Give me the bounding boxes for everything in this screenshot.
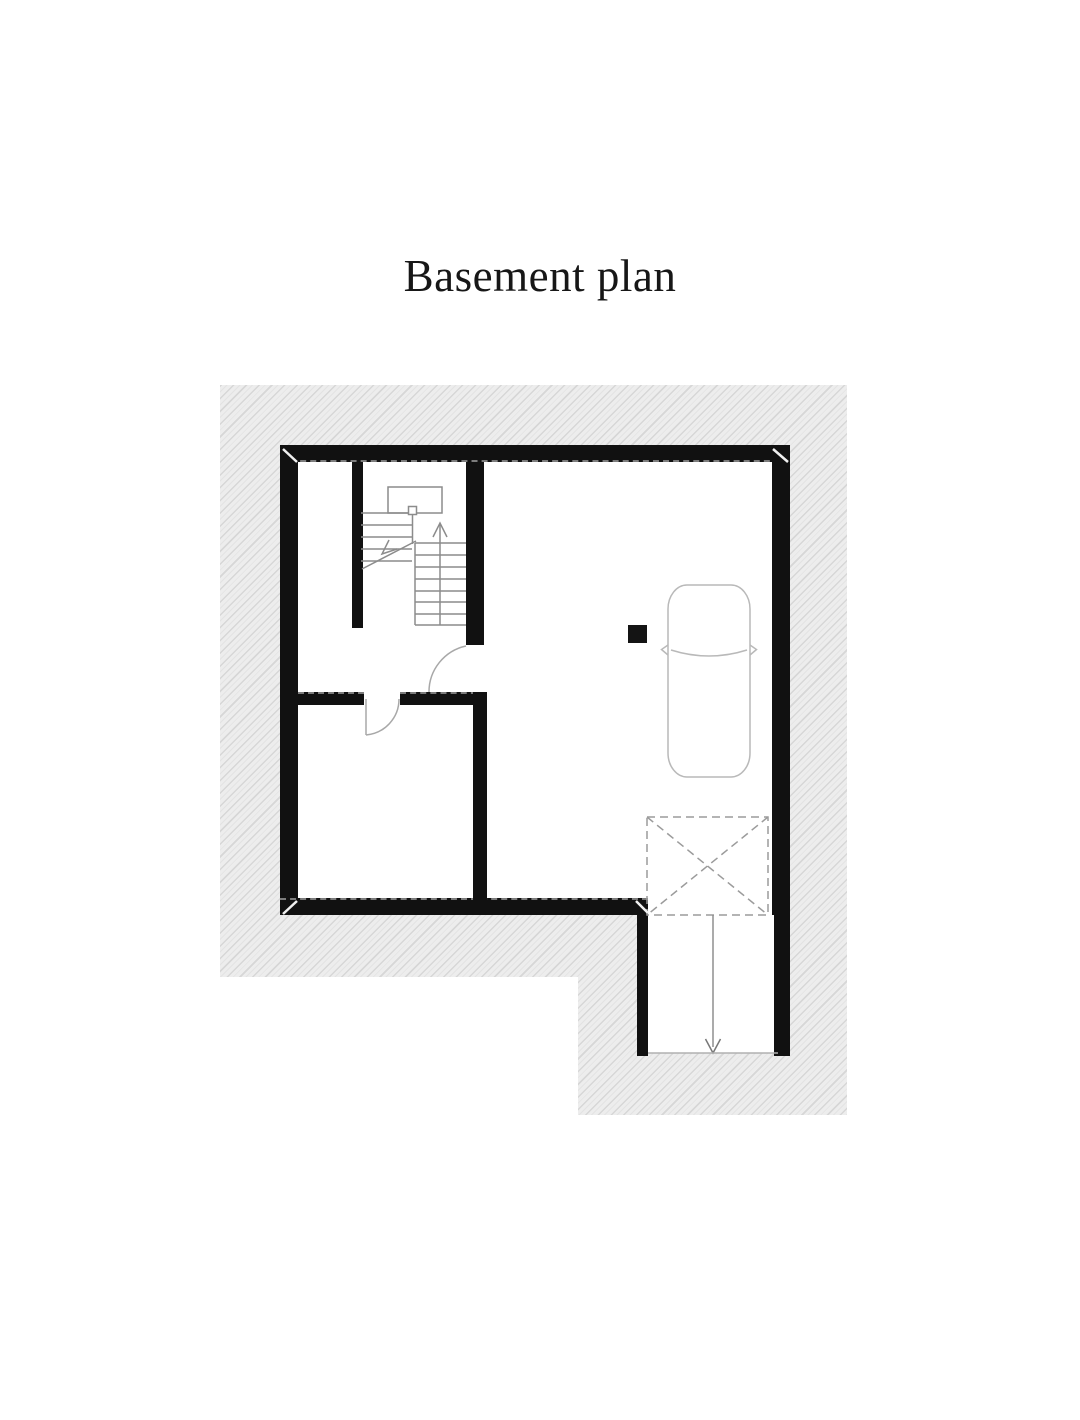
wall-stair-west: [352, 462, 363, 628]
page-title: Basement plan: [0, 250, 1080, 302]
ramp-footprint: [640, 915, 788, 1053]
page-container: Basement plan: [0, 0, 1080, 1420]
wall-interior-left: [298, 692, 364, 705]
wall-ramp-right: [774, 915, 790, 1056]
wall-exterior-top: [280, 445, 790, 462]
wall-ramp-left: [637, 915, 648, 1056]
wall-interior-vertical: [473, 692, 487, 900]
wall-exterior-right: [772, 445, 790, 915]
wall-stair-east: [466, 462, 484, 645]
wall-exterior-left: [280, 445, 298, 915]
wall-exterior-bottom: [280, 898, 648, 915]
